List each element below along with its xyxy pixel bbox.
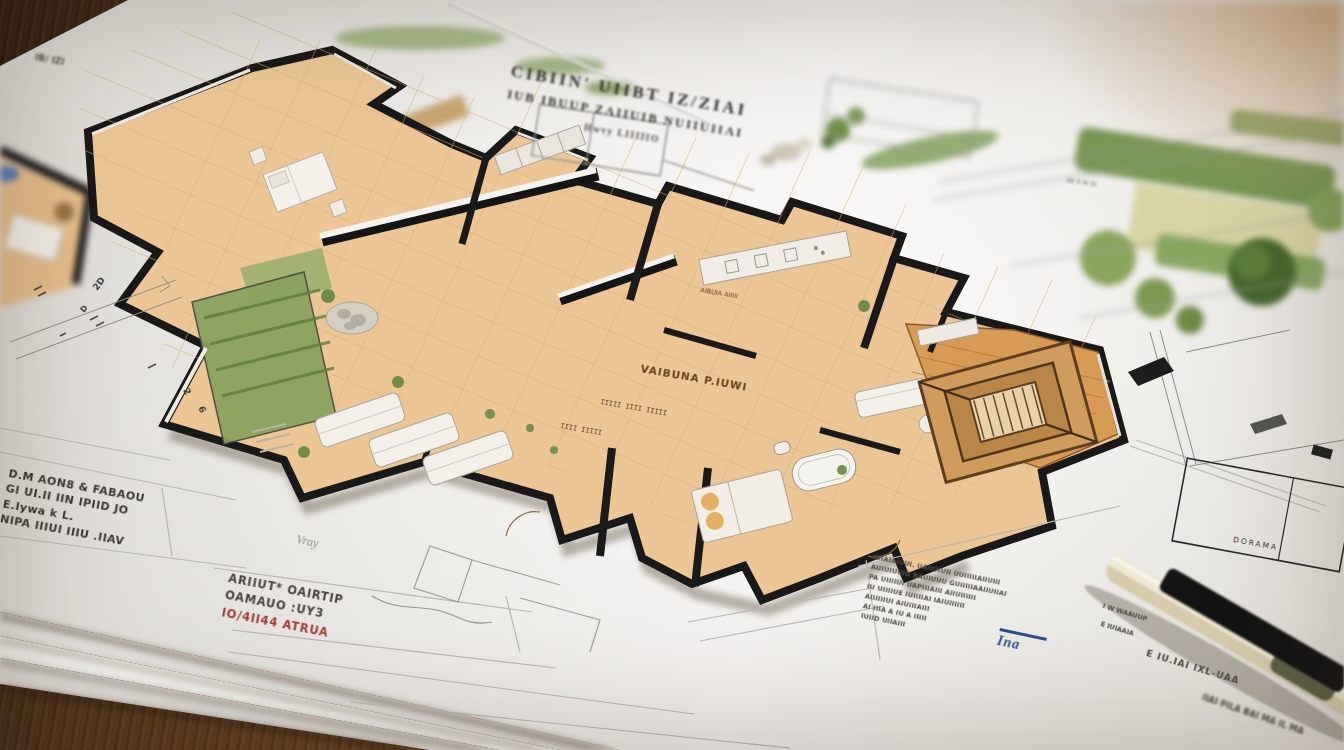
photo-floor-plan-scene: VAIBUNA P.IUWI IIIII IIII IIIII IIII III… xyxy=(0,0,1344,750)
pen xyxy=(1078,534,1344,750)
background-bokeh xyxy=(1044,0,1344,190)
